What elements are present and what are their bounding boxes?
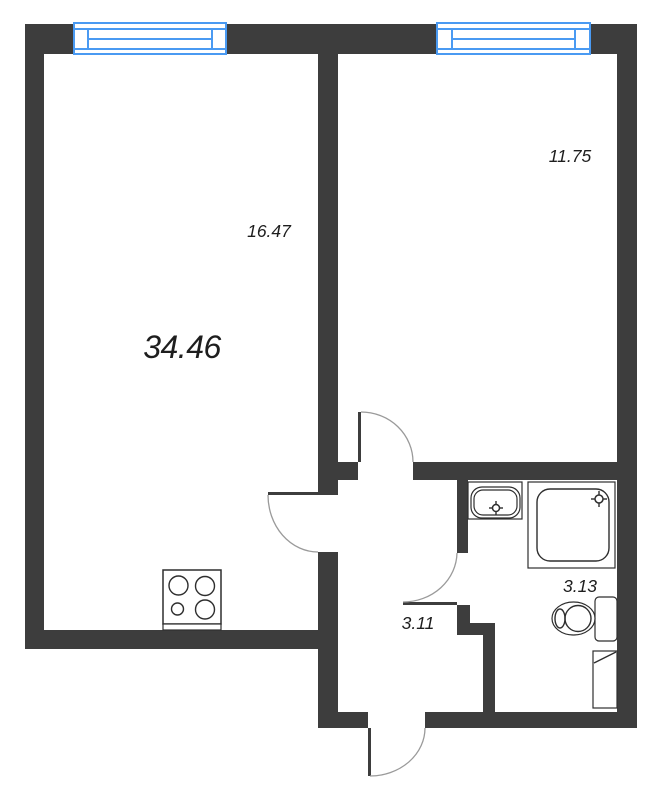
toilet-cistern bbox=[595, 597, 617, 641]
door-swing-icon-entrance bbox=[370, 728, 425, 776]
door-bedroom bbox=[360, 412, 414, 462]
door-swing-icon-bathroom bbox=[403, 553, 457, 602]
wall-divider-right bbox=[413, 462, 617, 480]
floor-plan-svg: 34.46 16.47 11.75 3.11 3.13 bbox=[0, 0, 667, 800]
wall-bottom-entry-left bbox=[318, 712, 368, 728]
bathroom-panel bbox=[593, 651, 617, 708]
washbasin-tap bbox=[493, 505, 500, 512]
wall-right-exterior bbox=[617, 24, 637, 728]
shower-drain bbox=[595, 495, 603, 503]
wall-bottom-entry-right bbox=[425, 712, 637, 728]
wall-center-lower bbox=[318, 552, 338, 728]
living-kitchen-area-label: 16.47 bbox=[247, 221, 292, 241]
toilet-icon bbox=[552, 597, 617, 641]
walls bbox=[25, 24, 637, 728]
floor-plan: 34.46 16.47 11.75 3.11 3.13 bbox=[0, 0, 667, 800]
wall-bathroom-step-horizontal bbox=[457, 623, 495, 635]
shower-tray-icon bbox=[528, 482, 615, 568]
wall-bathroom-step-vertical-2 bbox=[483, 635, 495, 712]
wall-bathroom-stub-upper bbox=[457, 480, 468, 553]
bedroom-area-label: 11.75 bbox=[549, 146, 592, 166]
hallway-area-label: 3.11 bbox=[402, 613, 435, 633]
door-bathroom bbox=[403, 553, 457, 604]
wall-top-middle-segment bbox=[226, 24, 437, 54]
window-right bbox=[437, 22, 590, 55]
door-living bbox=[268, 494, 318, 553]
bathroom-area-label: 3.13 bbox=[563, 576, 597, 596]
total-area-label: 34.46 bbox=[143, 329, 221, 365]
washbasin-icon bbox=[468, 482, 522, 519]
wall-left-exterior bbox=[25, 24, 44, 649]
door-entrance bbox=[370, 728, 426, 776]
wall-center-upper bbox=[318, 54, 338, 495]
door-swing-icon-living bbox=[268, 495, 318, 552]
wall-bottom-left-room bbox=[25, 630, 338, 649]
bathroom-panel-body bbox=[593, 651, 617, 708]
shower-enclosure bbox=[528, 482, 615, 568]
wall-divider-left-stub bbox=[338, 462, 358, 480]
stove-front-rail bbox=[163, 624, 221, 630]
door-swing-icon-bedroom bbox=[361, 412, 413, 462]
stove-4-burner-icon bbox=[163, 570, 221, 630]
window-left bbox=[74, 22, 226, 55]
